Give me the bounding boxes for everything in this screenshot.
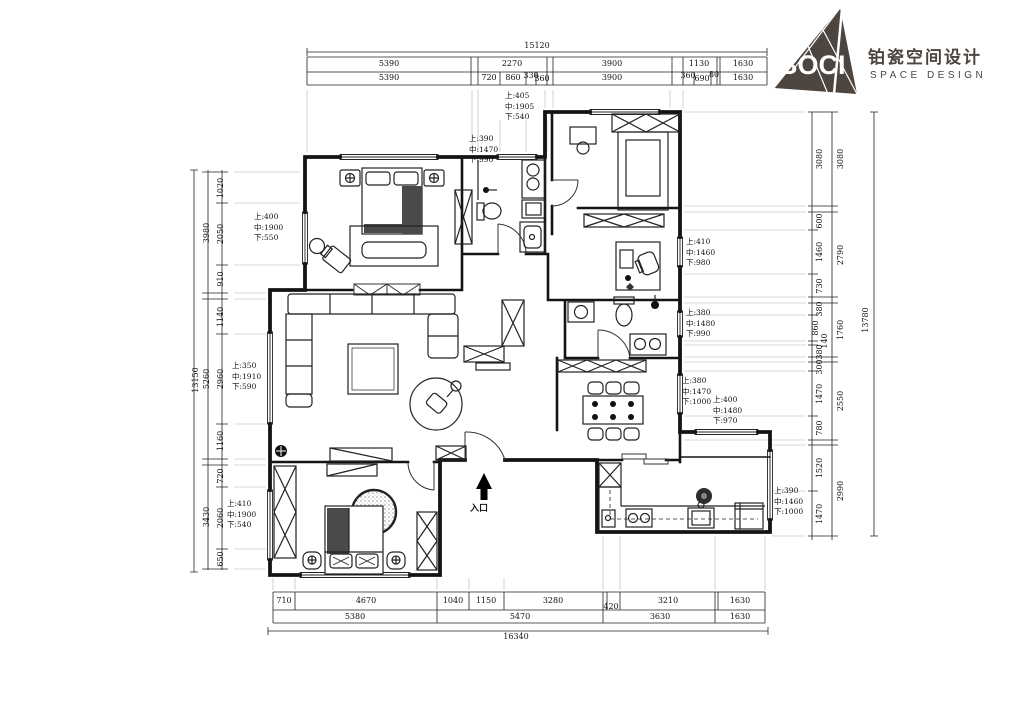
wardrobe [274, 466, 296, 558]
floor-plan-drawing [0, 0, 1024, 716]
stove [626, 509, 652, 527]
wardrobe [417, 512, 437, 570]
wardrobe [612, 114, 680, 132]
chair [606, 428, 621, 440]
chair [624, 428, 639, 440]
desk [616, 242, 660, 290]
stool [310, 239, 325, 254]
fridge [735, 503, 763, 529]
lounge-chair [410, 378, 462, 430]
coffee-table [348, 344, 398, 394]
furniture [274, 114, 765, 574]
interior-walls [270, 112, 770, 462]
bath-sink [522, 160, 545, 198]
chair [588, 382, 603, 394]
kitchen-sink [602, 510, 615, 527]
logo-brand: BOCI [778, 52, 846, 79]
entry-arrow [476, 473, 492, 500]
dimension-lines [190, 48, 878, 635]
entry-label: 入口 [470, 501, 488, 514]
logo: BOCI 铂瓷空间设计 SPACE DESIGN [770, 6, 1020, 102]
extension-lines [234, 90, 806, 590]
logo-brand-en: SPACE DESIGN [870, 70, 986, 82]
floor-plan-canvas: BOCI 铂瓷空间设计 SPACE DESIGN 入口 151205390227… [0, 0, 1024, 716]
chair [624, 382, 639, 394]
chair [588, 428, 603, 440]
logo-brand-cn: 铂瓷空间设计 [868, 48, 982, 68]
chair [606, 382, 621, 394]
